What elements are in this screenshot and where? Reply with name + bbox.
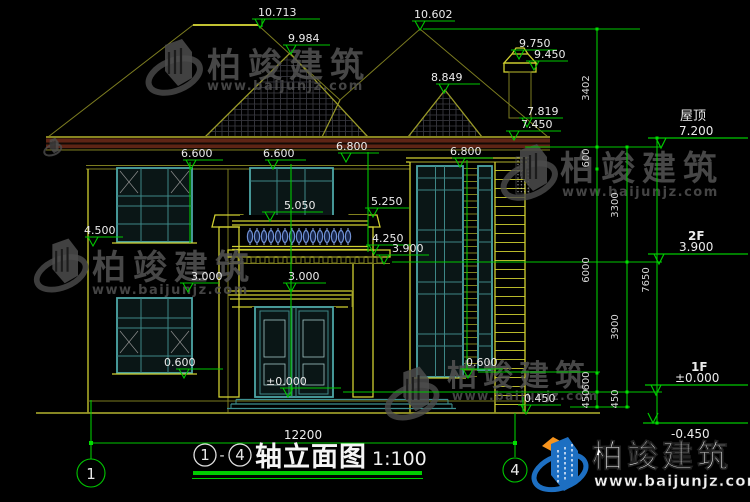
watermark-url: www.baijunjz.com	[207, 79, 364, 94]
level-roof: 屋顶 7.200	[648, 109, 748, 148]
svg-text:450: 450	[610, 389, 621, 408]
svg-text:3.900: 3.900	[679, 240, 713, 254]
svg-text:7.200: 7.200	[679, 124, 713, 138]
watermark-brand: 柏竣建筑	[92, 248, 256, 288]
level-marker-band-right: 5.250	[365, 195, 409, 217]
title-axis-end: 4	[235, 446, 245, 464]
svg-text:0.450: 0.450	[524, 392, 556, 405]
svg-text:±0.000: ±0.000	[675, 371, 719, 385]
watermark-logo-icon	[499, 144, 560, 205]
svg-text:3900: 3900	[610, 314, 621, 339]
svg-text:9.984: 9.984	[288, 32, 320, 45]
level-marker-ridge-left: 10.713	[252, 6, 320, 28]
drawing-scale: 1:100	[372, 448, 427, 470]
svg-text:10.713: 10.713	[258, 6, 297, 19]
svg-text:1: 1	[86, 465, 96, 483]
level-marker-ridge-right: 10.602	[412, 8, 455, 30]
drawing-title: 轴立面图	[255, 441, 367, 473]
roof-side-gable	[408, 90, 482, 137]
svg-text:7.819: 7.819	[527, 105, 559, 118]
elevation-drawing: 柏竣建筑 www.baijunjz.com 柏竣建筑 www.baijunjz.…	[0, 0, 750, 502]
watermark-url: www.baijunjz.com	[92, 283, 249, 298]
footer-logo-icon	[529, 437, 591, 496]
level-marker-gable-side: 8.849	[431, 71, 480, 93]
svg-text:3.900: 3.900	[392, 242, 424, 255]
footer-logo-brand: 柏竣建筑	[592, 439, 732, 475]
svg-text:4: 4	[510, 461, 520, 479]
svg-text:3.000: 3.000	[288, 270, 320, 283]
level-1f: 1F ±0.000	[645, 360, 748, 395]
svg-text:8.849: 8.849	[431, 71, 463, 84]
svg-text:5.050: 5.050	[284, 199, 316, 212]
svg-text:3402: 3402	[581, 75, 592, 100]
svg-text:6.600: 6.600	[263, 147, 295, 160]
svg-text:屋顶: 屋顶	[680, 109, 706, 124]
watermark-url: www.baijunjz.com	[562, 185, 719, 200]
svg-text:9.450: 9.450	[534, 48, 566, 61]
svg-text:6000: 6000	[581, 257, 592, 282]
watermark-logo-icon	[144, 39, 205, 100]
level-marker-plinth-right: 0.450	[518, 392, 561, 414]
svg-text:5.250: 5.250	[371, 195, 403, 208]
svg-text:600: 600	[581, 371, 592, 390]
window-wall-right	[414, 166, 492, 378]
svg-text:6.800: 6.800	[336, 140, 368, 153]
footer-logo: 柏竣建筑 www.baijunjz.com	[529, 437, 750, 496]
level-ground: -0.450	[643, 413, 748, 441]
svg-text:4.500: 4.500	[84, 224, 116, 237]
level-marker-sill-1f-left: 0.600	[164, 356, 223, 378]
axis-bubble-right: 4	[503, 458, 527, 482]
svg-text:3300: 3300	[610, 192, 621, 217]
window-right-wide	[417, 166, 463, 377]
watermark-logo-icon	[32, 239, 90, 297]
svg-text:±0.000: ±0.000	[266, 375, 307, 388]
svg-text:450: 450	[581, 389, 592, 408]
svg-text:3.000: 3.000	[191, 270, 223, 283]
mullion-pier	[464, 168, 477, 377]
svg-text:10.602: 10.602	[414, 8, 453, 21]
title-axis-start: 1	[200, 446, 210, 464]
svg-text:6.800: 6.800	[450, 145, 482, 158]
level-2f: 2F 3.900	[648, 229, 748, 264]
svg-text:7650: 7650	[641, 267, 652, 292]
axis-bubble-left: 1	[77, 459, 105, 487]
svg-text:7.450: 7.450	[521, 118, 553, 131]
svg-text:0.600: 0.600	[466, 356, 498, 369]
level-marker-canopy-top: 3.000	[283, 270, 326, 292]
dimension-chain-inner: 3402 600 6000 600 450	[581, 28, 599, 409]
svg-text:0.600: 0.600	[164, 356, 196, 369]
watermark-left: 柏竣建筑 www.baijunjz.com	[32, 239, 256, 298]
footer-logo-url: www.baijunjz.com	[594, 472, 750, 490]
title-underline-thick	[193, 471, 422, 475]
title-block: 1 - 4 轴立面图 1:100	[192, 441, 427, 479]
svg-text:6.600: 6.600	[181, 147, 213, 160]
svg-text:12200: 12200	[284, 428, 322, 442]
window-right-narrow	[478, 166, 492, 370]
watermark-top: 柏竣建筑 www.baijunjz.com	[144, 39, 371, 100]
title-dash: -	[219, 448, 224, 464]
svg-text:600: 600	[581, 148, 592, 167]
window-2f-left	[112, 168, 197, 243]
